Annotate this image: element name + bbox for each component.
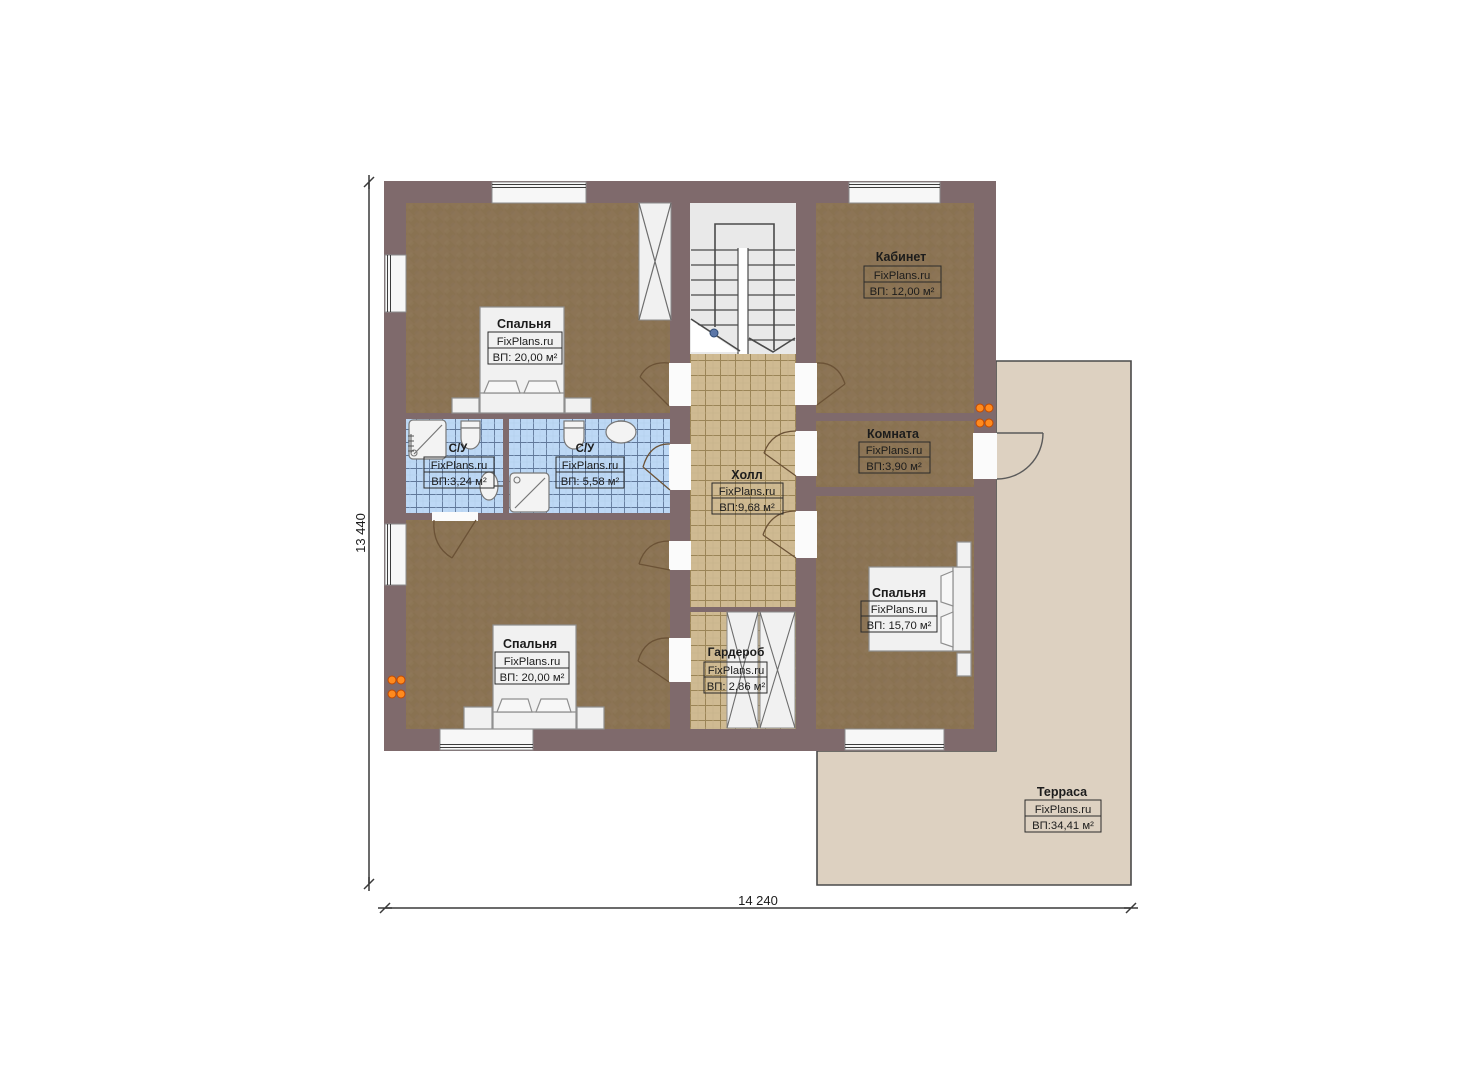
svg-text:FixPlans.ru: FixPlans.ru [562,460,619,472]
svg-text:ВП: 20,00 м²: ВП: 20,00 м² [493,352,558,364]
svg-text:FixPlans.ru: FixPlans.ru [431,460,488,472]
svg-text:FixPlans.ru: FixPlans.ru [1035,804,1092,816]
svg-text:FixPlans.ru: FixPlans.ru [708,665,765,677]
svg-text:Кабинет: Кабинет [876,250,927,264]
svg-text:ВП: 5,58 м²: ВП: 5,58 м² [561,476,620,488]
svg-text:С/У: С/У [576,443,596,455]
svg-text:Гардероб: Гардероб [708,645,765,659]
svg-text:FixPlans.ru: FixPlans.ru [866,445,923,457]
svg-text:FixPlans.ru: FixPlans.ru [497,336,554,348]
svg-text:ВП:3,90 м²: ВП:3,90 м² [866,461,922,473]
svg-text:Холл: Холл [731,468,762,482]
svg-text:FixPlans.ru: FixPlans.ru [719,486,776,498]
svg-text:FixPlans.ru: FixPlans.ru [874,270,931,282]
svg-text:FixPlans.ru: FixPlans.ru [871,604,928,616]
svg-text:ВП:34,41 м²: ВП:34,41 м² [1032,820,1094,832]
svg-text:ВП:3,24 м²: ВП:3,24 м² [431,476,487,488]
svg-text:ВП:9,68 м²: ВП:9,68 м² [719,502,775,514]
svg-text:ВП: 20,00 м²: ВП: 20,00 м² [500,672,565,684]
svg-text:С/У: С/У [449,443,469,455]
svg-text:Спальня: Спальня [497,317,551,331]
svg-text:ВП: 2,86 м²: ВП: 2,86 м² [707,681,766,693]
svg-text:13 440: 13 440 [353,513,368,553]
svg-text:Спальня: Спальня [503,637,557,651]
svg-text:14 240: 14 240 [738,893,778,908]
svg-text:FixPlans.ru: FixPlans.ru [504,656,561,668]
svg-text:ВП: 12,00 м²: ВП: 12,00 м² [870,286,935,298]
svg-text:Комната: Комната [867,427,920,441]
svg-text:ВП: 15,70 м²: ВП: 15,70 м² [867,620,932,632]
svg-text:Спальня: Спальня [872,586,926,600]
svg-text:Терраса: Терраса [1037,785,1088,799]
